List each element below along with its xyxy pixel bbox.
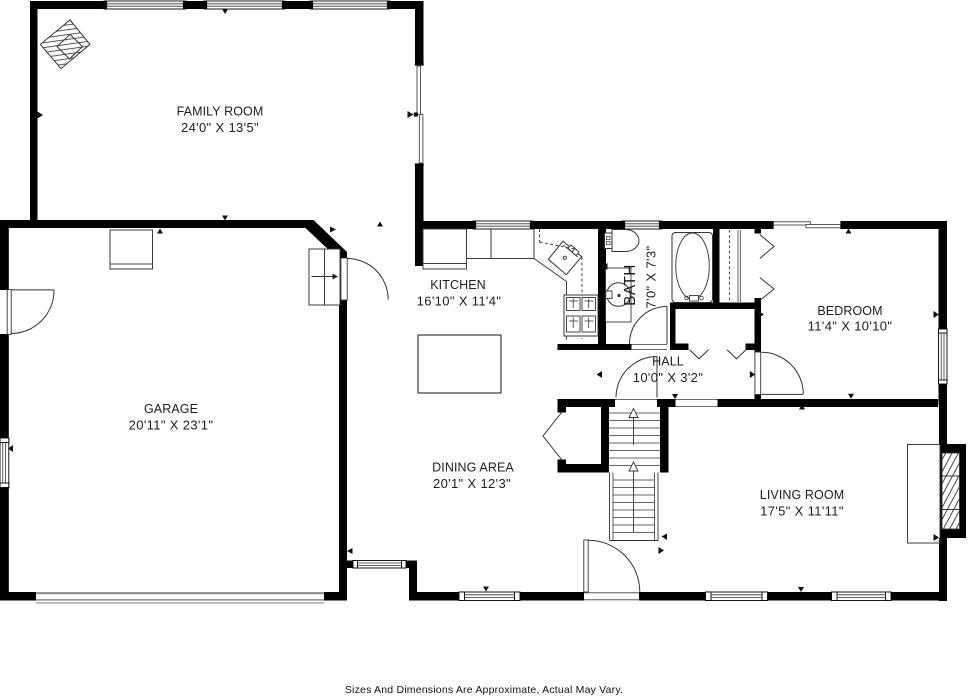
svg-text:BATH: BATH <box>622 264 639 306</box>
svg-text:7'0" X 7'3": 7'0" X 7'3" <box>644 246 659 309</box>
svg-text:20'11" X 23'1": 20'11" X 23'1" <box>129 418 214 433</box>
svg-text:FAMILY ROOM: FAMILY ROOM <box>177 105 264 119</box>
svg-text:DINING AREA: DINING AREA <box>432 461 514 475</box>
svg-text:GARAGE: GARAGE <box>144 402 198 416</box>
svg-text:24'0" X 13'5": 24'0" X 13'5" <box>181 120 259 135</box>
svg-text:Sizes And Dimensions Are Appro: Sizes And Dimensions Are Approximate, Ac… <box>345 684 623 696</box>
svg-text:LIVING ROOM: LIVING ROOM <box>760 488 844 502</box>
svg-text:20'1" X 12'3": 20'1" X 12'3" <box>433 476 511 491</box>
svg-text:16'10" X 11'4": 16'10" X 11'4" <box>417 294 502 309</box>
svg-text:HALL: HALL <box>652 355 684 369</box>
svg-text:17'5" X 11'11": 17'5" X 11'11" <box>760 504 844 519</box>
svg-text:KITCHEN: KITCHEN <box>430 278 486 292</box>
svg-text:BEDROOM: BEDROOM <box>817 304 882 318</box>
svg-text:11'4" X 10'10": 11'4" X 10'10" <box>808 319 893 334</box>
svg-text:10'0" X 3'2": 10'0" X 3'2" <box>633 370 703 385</box>
